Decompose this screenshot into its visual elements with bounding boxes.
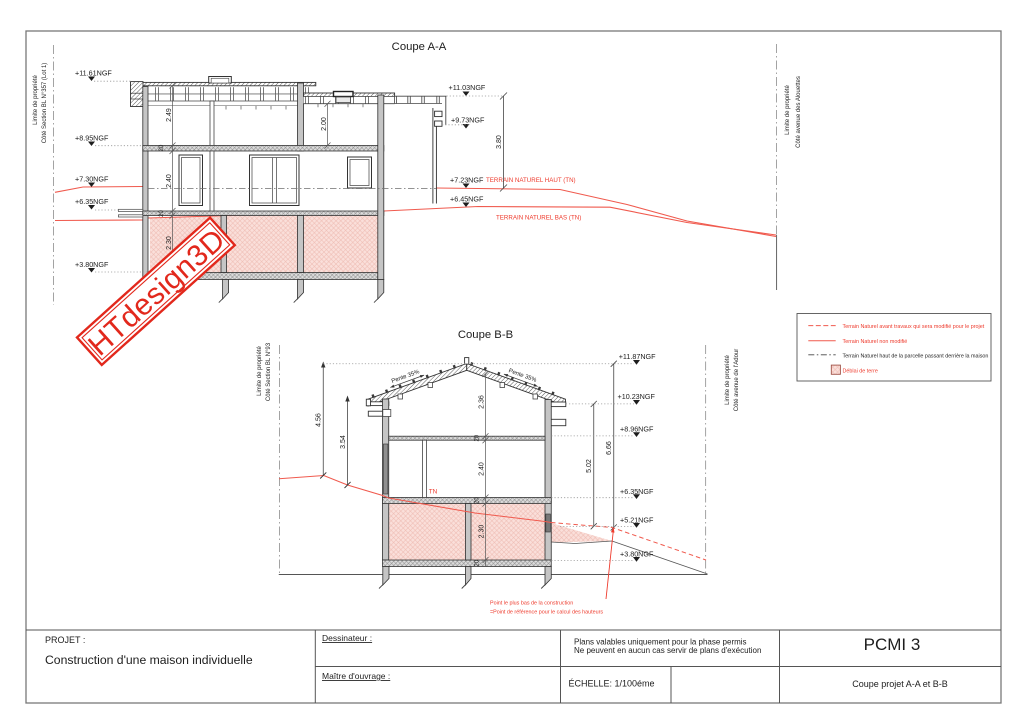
svg-text:+11.03NGF: +11.03NGF — [449, 83, 486, 92]
svg-text:Limite de propriété: Limite de propriété — [257, 345, 263, 395]
svg-text:Côté Section BL N°93: Côté Section BL N°93 — [266, 342, 272, 401]
svg-text:PROJET :: PROJET : — [45, 635, 85, 645]
svg-text:+7.30NGF: +7.30NGF — [75, 175, 109, 184]
svg-text:+6.45NGF: +6.45NGF — [450, 195, 484, 204]
svg-text:+11.87NGF: +11.87NGF — [619, 352, 656, 361]
svg-text:TN: TN — [429, 489, 438, 496]
svg-text:Dessinateur :: Dessinateur : — [322, 633, 372, 643]
svg-text:=Point de référence pour le ca: =Point de référence pour le calcul des h… — [490, 610, 603, 616]
svg-text:Côté Section BL N°357 (Lot 1): Côté Section BL N°357 (Lot 1) — [42, 63, 48, 144]
svg-text:20: 20 — [475, 497, 481, 504]
svg-text:+7.23NGF: +7.23NGF — [450, 176, 484, 185]
svg-text:Limite de propriété: Limite de propriété — [33, 74, 39, 124]
svg-text:2.40: 2.40 — [479, 462, 486, 476]
svg-text:2.36: 2.36 — [479, 395, 486, 409]
svg-text:Terrain Naturel avant travaux: Terrain Naturel avant travaux qui sera m… — [843, 324, 985, 330]
svg-text:Limite de propriété: Limite de propriété — [725, 354, 731, 404]
svg-text:2.40: 2.40 — [166, 174, 173, 188]
svg-text:TERRAIN NATUREL BAS (TN): TERRAIN NATUREL BAS (TN) — [496, 215, 581, 222]
svg-text:2.30: 2.30 — [479, 525, 486, 539]
svg-text:+8.96NGF: +8.96NGF — [620, 424, 654, 433]
svg-text:+3.80NGF: +3.80NGF — [75, 260, 109, 269]
svg-text:+6.35NGF: +6.35NGF — [75, 197, 109, 206]
svg-text:Déblai de terre: Déblai de terre — [843, 368, 878, 374]
svg-text:Côté avenue des Alouettes: Côté avenue des Alouettes — [796, 76, 802, 148]
svg-text:Terrain Naturel non modifié: Terrain Naturel non modifié — [843, 339, 908, 345]
svg-text:+8.95NGF: +8.95NGF — [75, 134, 109, 143]
svg-text:Ne peuvent en aucun cas servir: Ne peuvent en aucun cas servir de plans … — [574, 646, 761, 655]
svg-text:Limite de propriété: Limite de propriété — [785, 84, 791, 134]
svg-text:PCMI 3: PCMI 3 — [864, 635, 921, 654]
svg-text:6.66: 6.66 — [606, 441, 613, 455]
svg-text:20: 20 — [159, 210, 165, 217]
svg-text:Coupe A-A: Coupe A-A — [392, 41, 447, 53]
svg-text:2.49: 2.49 — [166, 108, 173, 122]
svg-text:Terrain Naturel haut de la par: Terrain Naturel haut de la parcelle pass… — [843, 353, 989, 359]
svg-text:+11.61NGF: +11.61NGF — [75, 69, 112, 78]
svg-text:Coupe projet A-A et B-B: Coupe projet A-A et B-B — [852, 679, 948, 689]
svg-text:5.02: 5.02 — [586, 459, 593, 473]
svg-text:4.56: 4.56 — [316, 413, 323, 427]
svg-text:20: 20 — [159, 144, 165, 151]
svg-text:Côté avenue de l'Adour: Côté avenue de l'Adour — [734, 349, 740, 412]
svg-text:20: 20 — [475, 434, 481, 441]
svg-text:TERRAIN NATUREL HAUT (TN): TERRAIN NATUREL HAUT (TN) — [486, 177, 576, 184]
svg-text:Construction d'une maison indi: Construction d'une maison individuelle — [45, 653, 253, 667]
svg-text:2.00: 2.00 — [321, 117, 328, 131]
svg-text:20: 20 — [475, 559, 481, 566]
svg-text:ÉCHELLE: 1/100éme: ÉCHELLE: 1/100éme — [569, 679, 655, 689]
svg-text:+10.23NGF: +10.23NGF — [618, 392, 656, 401]
svg-text:+9.73NGF: +9.73NGF — [451, 116, 485, 125]
svg-text:2.30: 2.30 — [166, 236, 173, 250]
svg-text:Maître d'ouvrage :: Maître d'ouvrage : — [322, 671, 390, 681]
svg-text:Coupe B-B: Coupe B-B — [458, 329, 513, 341]
svg-text:3.54: 3.54 — [340, 435, 347, 449]
svg-text:Point le plus bas de la constr: Point le plus bas de la construction — [490, 601, 573, 607]
svg-text:3.80: 3.80 — [496, 135, 503, 149]
svg-text:+3.80NGF: +3.80NGF — [620, 549, 654, 558]
